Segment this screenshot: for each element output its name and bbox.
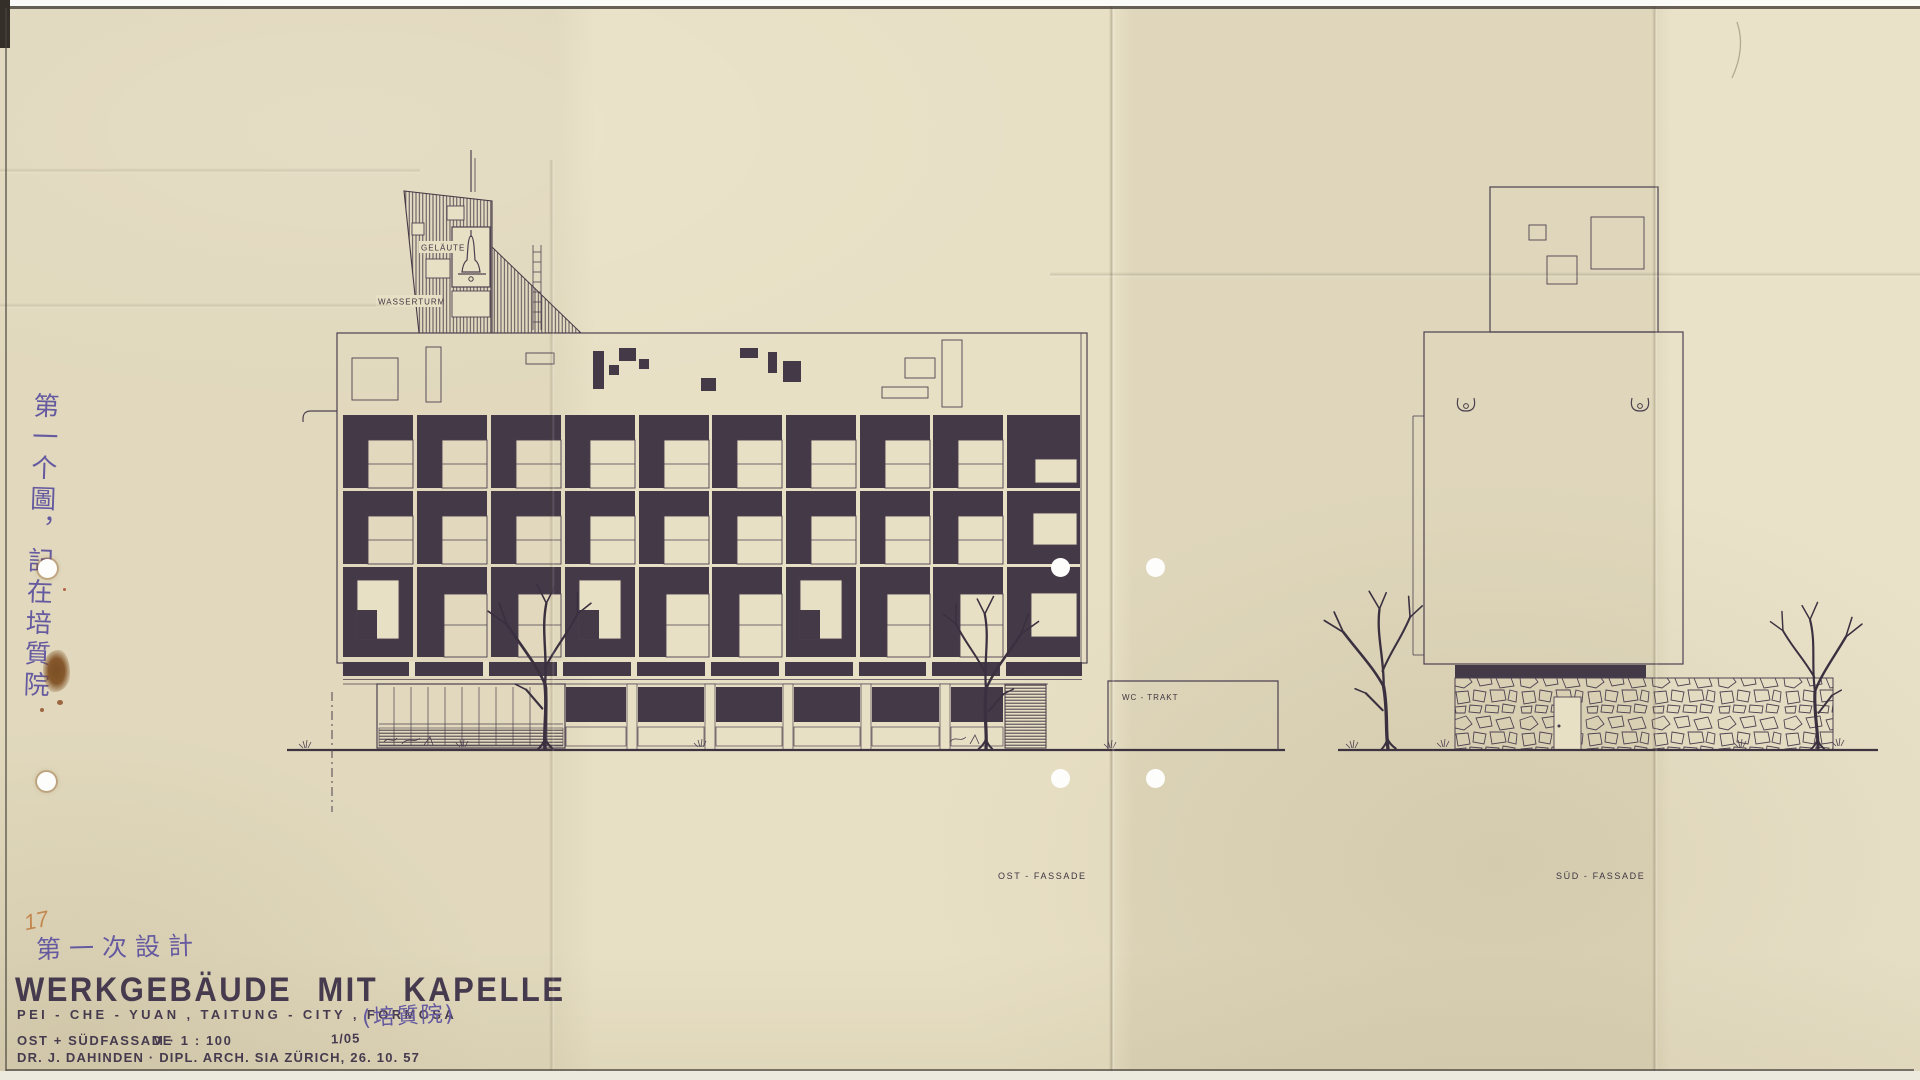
water-spout [1631, 398, 1648, 411]
sheet-number: 1/05 [331, 1030, 361, 1046]
punch-hole [38, 559, 57, 578]
tree [1322, 588, 1432, 753]
punch-hole [1051, 558, 1070, 577]
south-facade [1338, 187, 1878, 750]
east-facade [287, 333, 1285, 812]
stone-wall [1455, 678, 1833, 750]
blueprint-sheet: GELÄUTE WASSERTURM [0, 0, 1920, 1080]
sued-fassade-label: SÜD - FASSADE [1556, 871, 1645, 881]
sheet-title: WERKGEBÄUDE MIT KAPELLE [15, 970, 566, 1010]
ost-fassade-label: OST - FASSADE [998, 871, 1087, 881]
architect-line: DR. J. DAHINDEN · DIPL. ARCH. SIA ZÜRICH… [17, 1050, 420, 1065]
bell-tower: GELÄUTE WASSERTURM [376, 150, 581, 333]
stain-speck [63, 588, 66, 591]
ground-floor [377, 684, 1046, 750]
roof-band [352, 340, 962, 407]
chinese-note: 第一次設計 [36, 926, 202, 966]
gelaeute-label: GELÄUTE [421, 244, 465, 253]
ink-stain [43, 650, 70, 692]
water-spout [1457, 398, 1474, 411]
shadow-band [1455, 665, 1646, 678]
stain-speck [40, 708, 44, 712]
scale-note: M · 1 : 100 [152, 1033, 232, 1048]
punch-hole [1146, 769, 1165, 788]
punch-hole [37, 772, 56, 791]
wc-annex: WC - TRAKT [1108, 681, 1278, 750]
chinese-parenthetical: (培質院) [361, 996, 456, 1033]
wc-trakt-label: WC - TRAKT [1122, 693, 1179, 702]
punch-hole [1051, 769, 1070, 788]
elevation-drawing: GELÄUTE WASSERTURM [0, 0, 1920, 1080]
drawing-content: OST + SÜDFASSADE [17, 1033, 173, 1048]
spandrel-band [343, 661, 1082, 684]
stain-speck [57, 700, 63, 705]
punch-hole [1146, 558, 1165, 577]
wasserturm-label: WASSERTURM [378, 298, 445, 307]
window-grid [343, 415, 1080, 657]
pencil-mark [1732, 22, 1741, 78]
